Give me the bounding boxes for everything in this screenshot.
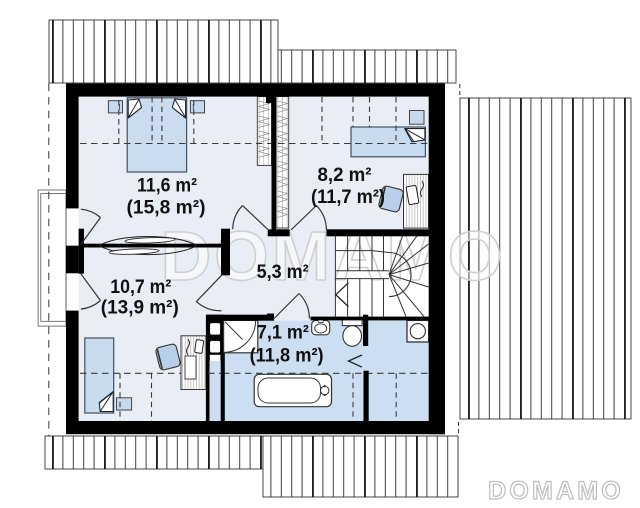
svg-text:10,7 m²: 10,7 m² (110, 277, 172, 298)
svg-text:5,3 m²: 5,3 m² (257, 262, 310, 283)
svg-text:(11,8 m²): (11,8 m²) (250, 346, 324, 367)
svg-text:11,6 m²: 11,6 m² (137, 176, 198, 197)
svg-text:(13,9 m²): (13,9 m²) (101, 298, 179, 319)
svg-text:(15,8 m²): (15,8 m²) (127, 197, 206, 218)
svg-text:DOMAMO: DOMAMO (161, 217, 506, 295)
svg-text:7,1 m²: 7,1 m² (257, 322, 310, 343)
svg-text:DOMAMO: DOMAMO (488, 477, 624, 505)
svg-text:8,2 m²: 8,2 m² (318, 165, 373, 186)
svg-text:(11,7 m²): (11,7 m²) (311, 187, 385, 208)
